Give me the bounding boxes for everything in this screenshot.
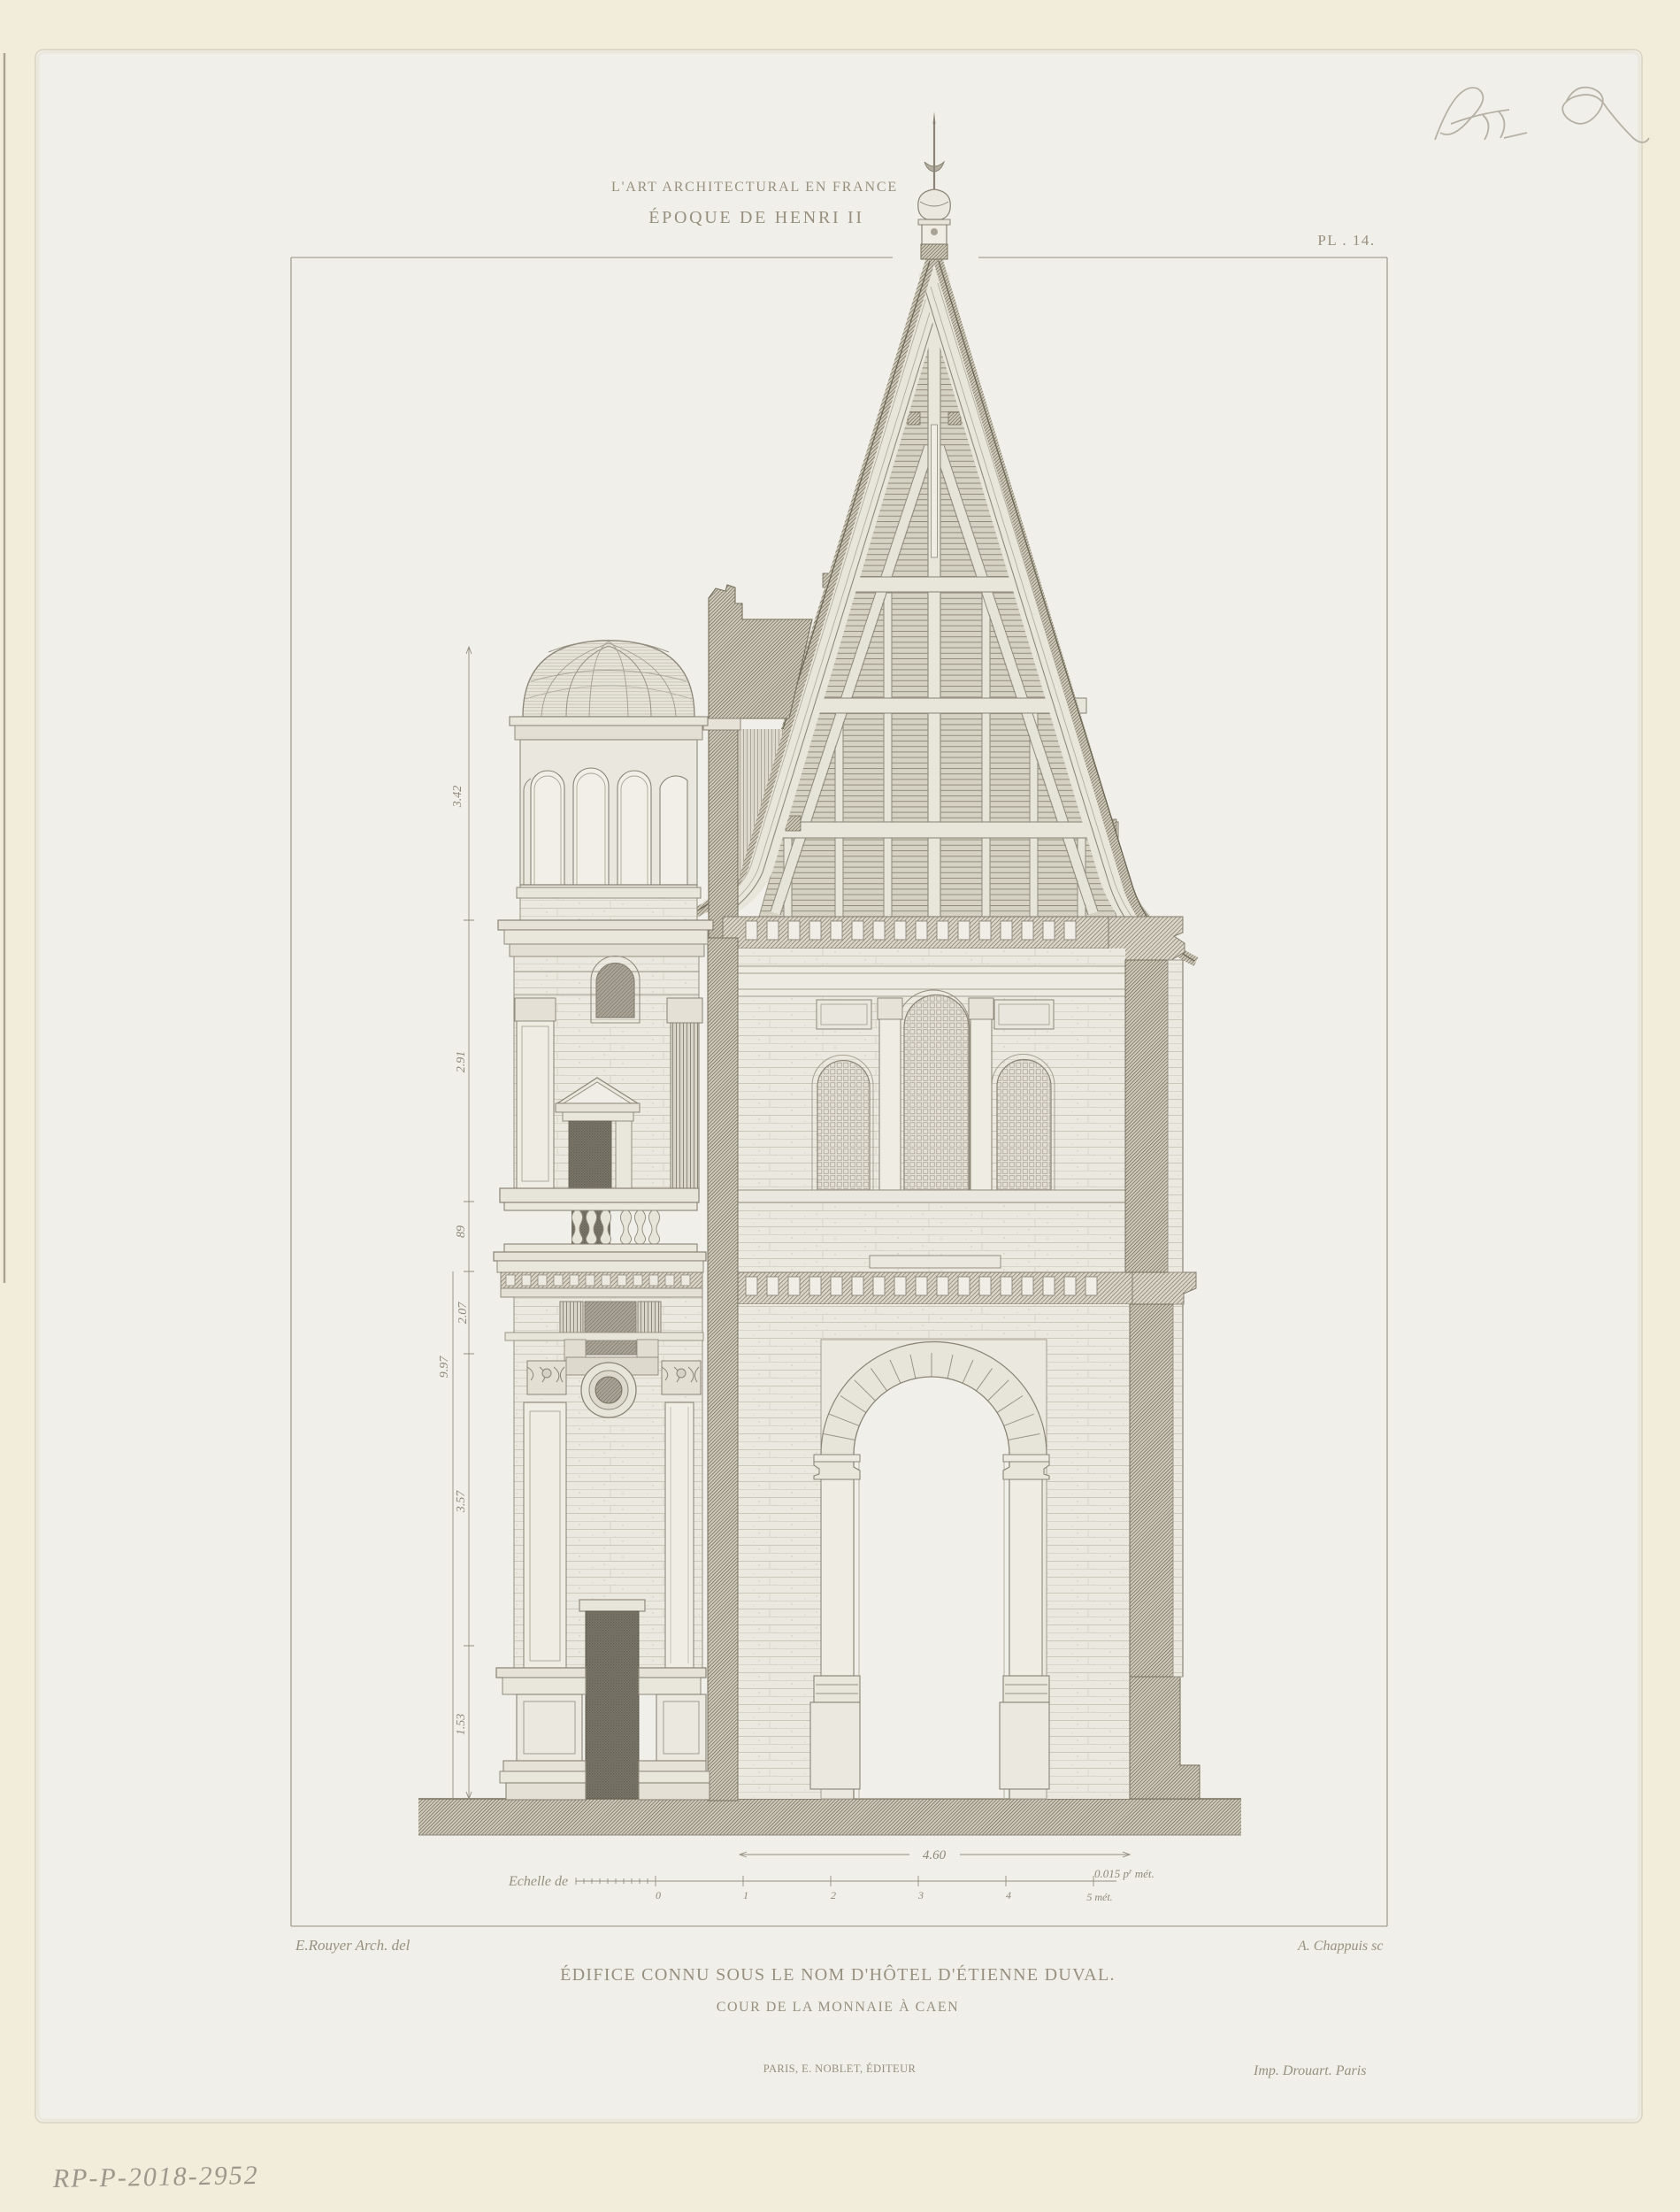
svg-text:3.42: 3.42 bbox=[451, 786, 464, 809]
svg-text:89: 89 bbox=[455, 1225, 468, 1238]
svg-text:1: 1 bbox=[743, 1889, 748, 1901]
svg-text:COUR DE LA MONNAIE À CAEN: COUR DE LA MONNAIE À CAEN bbox=[717, 1998, 959, 2015]
svg-text:4: 4 bbox=[1006, 1889, 1011, 1901]
svg-text:RP-P-2018-2952: RP-P-2018-2952 bbox=[52, 2161, 259, 2193]
svg-text:Imp. Drouart. Paris: Imp. Drouart. Paris bbox=[1253, 2063, 1366, 2078]
svg-text:1.53: 1.53 bbox=[455, 1714, 468, 1736]
svg-text:2.91: 2.91 bbox=[455, 1051, 468, 1073]
svg-text:5 mét.: 5 mét. bbox=[1086, 1891, 1112, 1903]
svg-text:3: 3 bbox=[917, 1889, 924, 1901]
svg-text:Echelle de: Echelle de bbox=[508, 1874, 568, 1889]
svg-text:0: 0 bbox=[656, 1889, 661, 1901]
svg-text:0.015 pr mét.: 0.015 pr mét. bbox=[1094, 1867, 1155, 1880]
svg-text:4.60: 4.60 bbox=[923, 1848, 947, 1863]
svg-text:2: 2 bbox=[831, 1889, 836, 1901]
svg-text:A. Chappuis sc: A. Chappuis sc bbox=[1297, 1939, 1383, 1954]
svg-text:ÉDIFICE CONNU SOUS LE NOM: ÉDIFICE CONNU SOUS LE NOM D'HÔTEL D'ÉTIE… bbox=[560, 1963, 1116, 1985]
svg-text:2.07: 2.07 bbox=[456, 1302, 470, 1325]
svg-text:PARIS, E. NOBLET, ÉDITEUR: PARIS, E. NOBLET, ÉDITEUR bbox=[763, 2062, 917, 2075]
svg-text:L'ART ARCHITECTURAL EN FRAN: L'ART ARCHITECTURAL EN FRANCE bbox=[611, 180, 898, 195]
svg-text:E.Rouyer Arch. del: E.Rouyer Arch. del bbox=[295, 1937, 410, 1954]
svg-text:9.97: 9.97 bbox=[438, 1356, 451, 1379]
svg-text:PL . 14.: PL . 14. bbox=[1317, 232, 1375, 249]
svg-text:3.57: 3.57 bbox=[455, 1490, 468, 1514]
svg-text:ÉPOQUE DE HENRI II: ÉPOQUE DE HENRI II bbox=[648, 207, 864, 227]
